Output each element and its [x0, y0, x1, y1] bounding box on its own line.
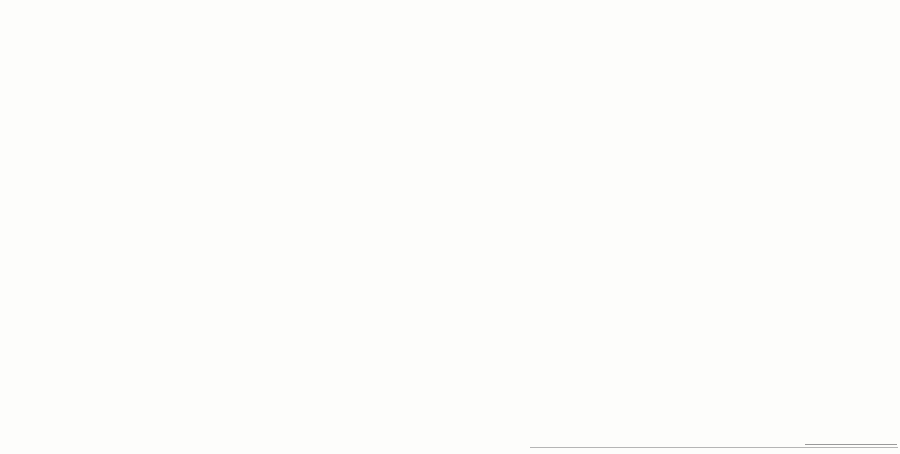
- site-plan-map: [520, 0, 900, 454]
- legend-divider: [805, 444, 897, 445]
- legend: [800, 263, 898, 266]
- render-top-image: [8, 8, 500, 237]
- presentation-board: [0, 0, 900, 454]
- sheet-border-line: [530, 447, 898, 448]
- render-bottom-image: [8, 250, 514, 449]
- notes-block: [694, 366, 808, 370]
